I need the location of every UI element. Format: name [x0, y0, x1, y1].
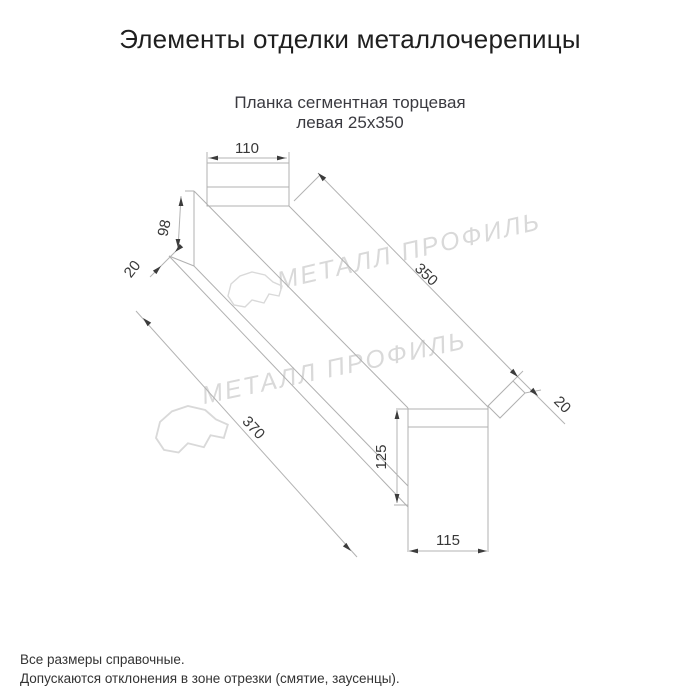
- watermark-text-2: МЕТАЛЛ ПРОФИЛЬ: [199, 326, 469, 410]
- dim-label-top-flange-width: 110: [235, 140, 259, 157]
- dim-label-length-left: 370: [239, 413, 269, 443]
- dimension-labels: 110 98 20 350 20 370 125 115: [121, 140, 574, 549]
- dim-label-slope-face: 98: [155, 218, 175, 238]
- watermark-layer: МЕТАЛЛ ПРОФИЛЬ МЕТАЛЛ ПРОФИЛЬ: [156, 207, 544, 452]
- dim-label-hem-near: 20: [121, 257, 145, 281]
- watermark-text-1: МЕТАЛЛ ПРОФИЛЬ: [274, 207, 544, 295]
- dim-label-end-height: 125: [373, 444, 390, 469]
- technical-drawing: МЕТАЛЛ ПРОФИЛЬ МЕТАЛЛ ПРОФИЛЬ: [0, 0, 700, 700]
- note-line-2: Допускаются отклонения в зоне отрезки (с…: [20, 669, 400, 688]
- dim-label-end-width: 115: [436, 532, 460, 549]
- note-line-1: Все размеры справочные.: [20, 650, 400, 669]
- logo-cloud-icon-1: [228, 272, 282, 307]
- logo-cloud-icon-2: [156, 406, 228, 453]
- footnotes: Все размеры справочные. Допускаются откл…: [20, 650, 400, 688]
- dim-label-length-right: 350: [411, 260, 441, 290]
- product-drawing-page: Элементы отделки металлочерепицы Планка …: [0, 0, 700, 700]
